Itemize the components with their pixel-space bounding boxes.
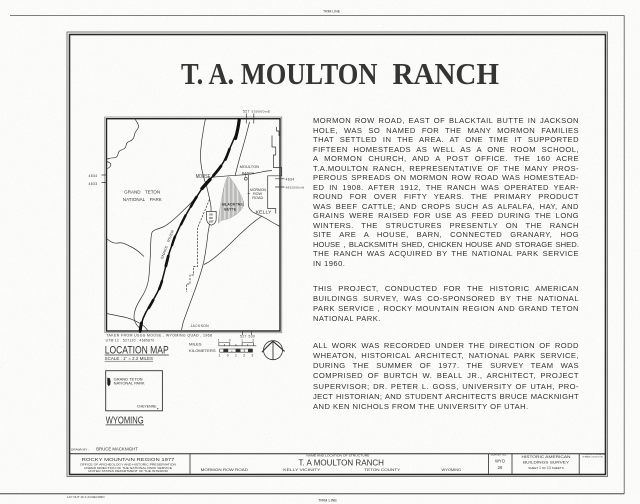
svg-text:T. A. MOULTON: T. A. MOULTON: [181, 57, 378, 91]
svg-text:WYOMING: WYOMING: [442, 467, 462, 472]
svg-text:4832000mN: 4832000mN: [286, 186, 305, 190]
svg-text:BUTTE: BUTTE: [224, 208, 237, 212]
svg-text:JACKSON: JACKSON: [191, 324, 210, 328]
svg-text:RANCH: RANCH: [242, 170, 255, 175]
svg-text:TRIM LINE: TRIM LINE: [318, 499, 338, 503]
svg-text:UNDER DIRECTION OF THE NATIONA: UNDER DIRECTION OF THE NATIONAL PARK SER…: [84, 466, 172, 470]
svg-text:527: 527: [243, 110, 250, 114]
svg-text:MORMON ROW ROAD: MORMON ROW ROAD: [201, 467, 249, 472]
svg-text:KELLY VICINITY: KELLY VICINITY: [283, 467, 321, 472]
svg-text:LOCATION OF NEGATIVE: LOCATION OF NEGATIVE: [583, 453, 606, 456]
svg-text:T. A MOULTON RANCH: T. A MOULTON RANCH: [299, 458, 385, 467]
svg-text:1: 1: [241, 338, 243, 342]
svg-text:BRUCE MACKNIGHT: BRUCE MACKNIGHT: [96, 447, 138, 452]
svg-text:3: 3: [251, 354, 253, 358]
svg-text:BUILDINGS SURVEY: BUILDINGS SURVEY: [523, 459, 569, 464]
svg-text:UTM 12 . 527120 . 4685870: UTM 12 . 527120 . 4685870: [106, 339, 155, 343]
svg-text:26: 26: [498, 465, 503, 470]
svg-text:SURVEY NO.: SURVEY NO.: [491, 453, 508, 457]
svg-text:KILOMETERS: KILOMETERS: [189, 349, 216, 353]
svg-text:530000mE: 530000mE: [252, 110, 271, 114]
svg-text:4833: 4833: [89, 182, 98, 186]
svg-text:SHEET 1 OF 13 SHEETS: SHEET 1 OF 13 SHEETS: [528, 466, 563, 470]
svg-text:NATIONAL PARK: NATIONAL PARK: [123, 197, 162, 202]
svg-text:DRAWN BY :: DRAWN BY :: [71, 447, 89, 451]
svg-text:TETON COUNTY: TETON COUNTY: [364, 467, 400, 472]
svg-text:BLACKTAIL: BLACKTAIL: [222, 203, 244, 207]
svg-text:CHEYENNE: CHEYENNE: [137, 405, 157, 409]
svg-text:RANCH: RANCH: [393, 57, 500, 91]
svg-text:2: 2: [252, 338, 254, 342]
svg-text:0: 0: [227, 354, 229, 358]
svg-text:GRAND TETON: GRAND TETON: [124, 190, 160, 195]
svg-text:MOOSE: MOOSE: [196, 174, 211, 180]
svg-text:UNITED STATES DEPARTMENT OF TH: UNITED STATES DEPARTMENT OF THE INTERIOR: [88, 469, 168, 473]
svg-text:4834: 4834: [89, 174, 98, 178]
svg-text:1: 1: [219, 354, 221, 358]
svg-text:IN HABS COLLECTION: IN HABS COLLECTION: [583, 456, 604, 459]
svg-text:0: 0: [229, 338, 231, 342]
svg-text:1: 1: [235, 354, 237, 358]
svg-text:1: 1: [218, 338, 220, 342]
svg-text:LAY OUT 19 X 24 RECORD: LAY OUT 19 X 24 RECORD: [67, 495, 105, 499]
svg-text:NATIONAL PARK: NATIONAL PARK: [114, 381, 146, 385]
svg-text:4834: 4834: [286, 177, 295, 181]
svg-text:TAKEN FROM USGS MOOSE , W: TAKEN FROM USGS MOOSE , WYOMING QUAD , 1…: [106, 333, 212, 337]
svg-text:ROCKY MOUNTAIN REGION: ROCKY MOUNTAIN REGION 1977: [82, 457, 176, 462]
svg-text:OFFICE OF ARCHEOLOGY AND HISTO: OFFICE OF ARCHEOLOGY AND HISTORIC PRESER…: [80, 462, 176, 466]
svg-text:SCALE : 1" = 2.2 MILES: SCALE : 1" = 2.2 MILES: [105, 356, 153, 361]
svg-text:NAME AND LOCATION OF STRUCTURE: NAME AND LOCATION OF STRUCTURE: [306, 454, 369, 458]
svg-text:KELLY: KELLY: [256, 210, 272, 215]
svg-text:ROAD: ROAD: [252, 196, 264, 200]
svg-text:MILES: MILES: [189, 343, 202, 347]
svg-text:2: 2: [243, 354, 245, 358]
svg-text:LOCATION MAP: LOCATION MAP: [105, 344, 169, 356]
svg-text:187: 187: [209, 220, 214, 224]
svg-text:MOULTON: MOULTON: [240, 164, 260, 169]
svg-text:WYO: WYO: [495, 458, 506, 463]
